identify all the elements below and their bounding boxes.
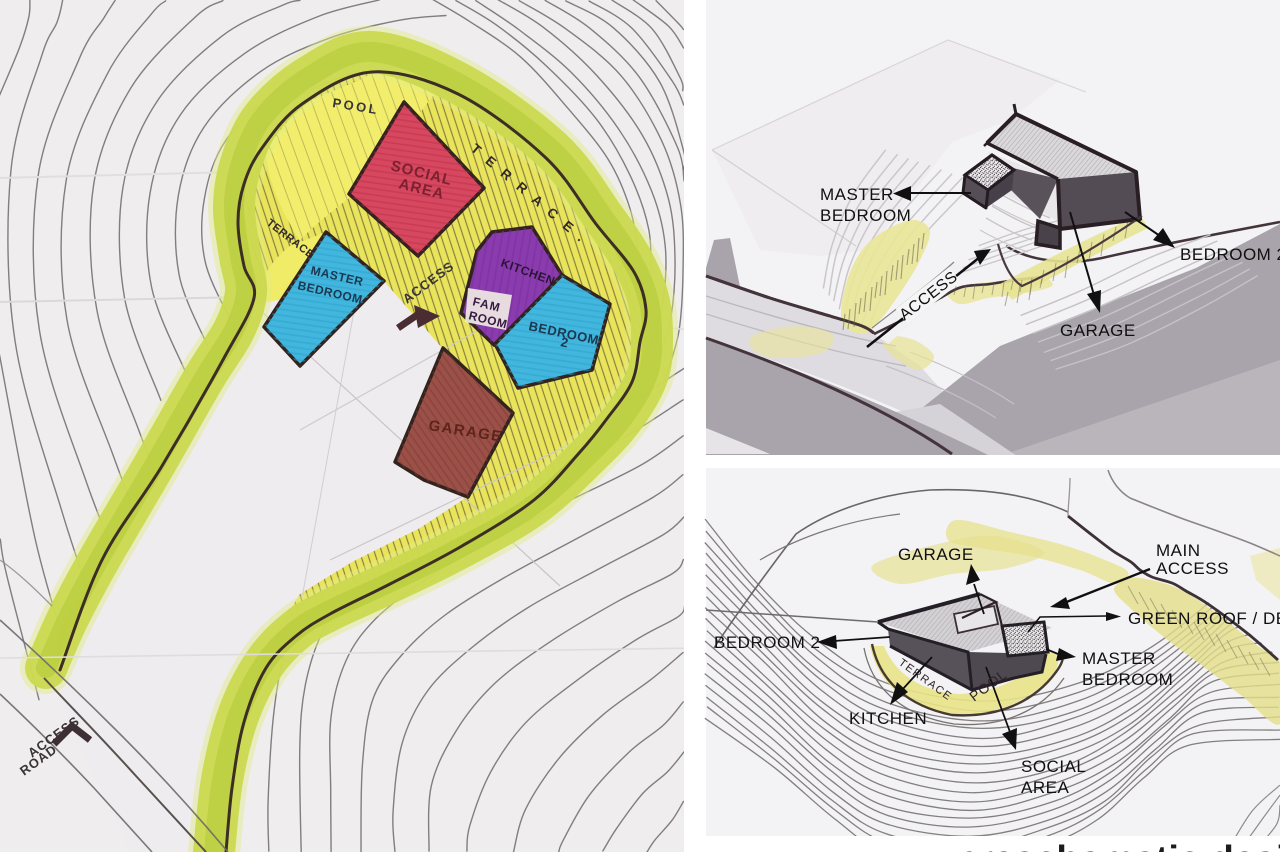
svg-text:MAIN: MAIN	[1156, 541, 1201, 560]
svg-text:MASTER: MASTER	[1082, 649, 1156, 668]
svg-text:BEDROOM: BEDROOM	[1082, 670, 1173, 689]
svg-text:GARAGE: GARAGE	[1060, 321, 1136, 340]
svg-text:AREA: AREA	[1021, 778, 1069, 797]
svg-text:BEDROOM 2: BEDROOM 2	[714, 633, 821, 652]
svg-text:preschematic design: preschematic design	[955, 839, 1280, 852]
svg-text:ACCESS: ACCESS	[1156, 559, 1229, 578]
svg-text:SOCIAL: SOCIAL	[1021, 757, 1086, 776]
svg-text:KITCHEN: KITCHEN	[849, 709, 927, 728]
svg-text:BEDROOM 2: BEDROOM 2	[1180, 245, 1280, 264]
svg-text:BEDROOM: BEDROOM	[820, 206, 911, 225]
svg-text:MASTER: MASTER	[820, 185, 894, 204]
svg-text:GREEN ROOF / DEC: GREEN ROOF / DEC	[1128, 609, 1280, 628]
svg-text:GARAGE: GARAGE	[898, 545, 974, 564]
